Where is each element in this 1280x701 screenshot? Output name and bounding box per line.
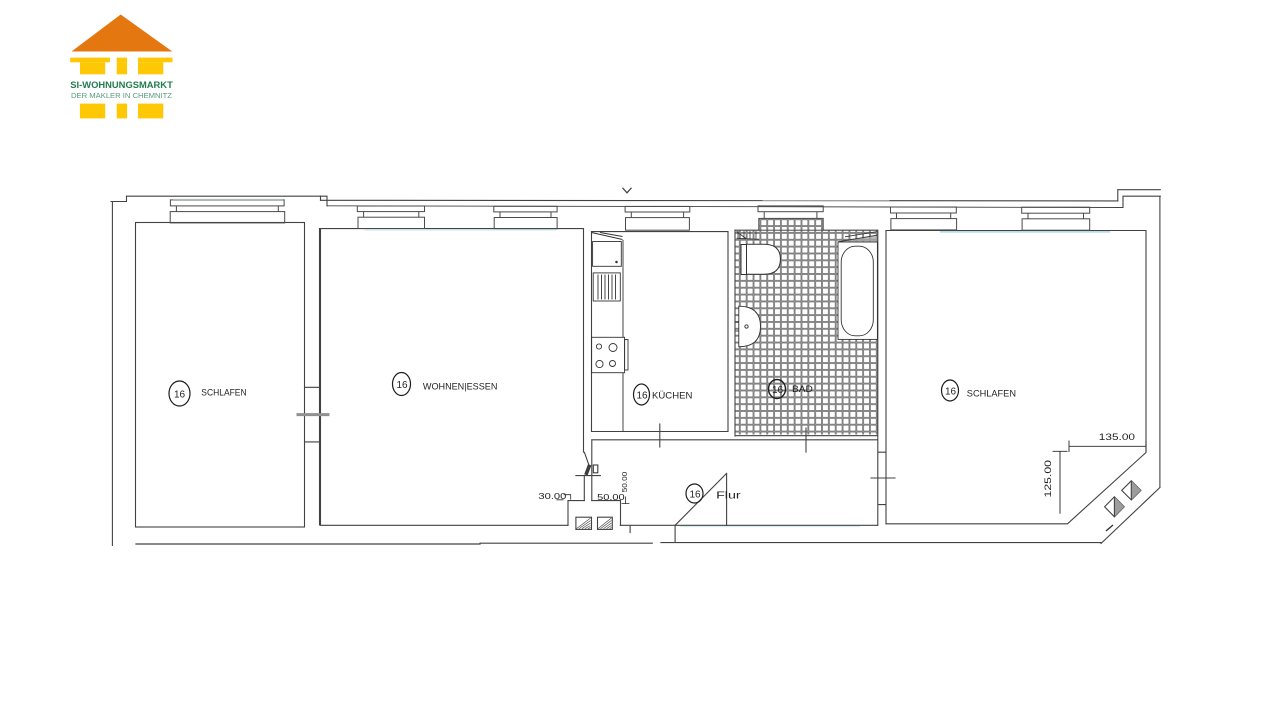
svg-text:KÜCHEN: KÜCHEN xyxy=(652,391,692,401)
svg-text:16: 16 xyxy=(637,391,649,402)
svg-text:SI-WOHNUNGSMARKT: SI-WOHNUNGSMARKT xyxy=(70,80,173,91)
svg-text:16: 16 xyxy=(772,385,784,396)
svg-text:BAD: BAD xyxy=(792,384,813,394)
svg-text:16: 16 xyxy=(945,387,957,398)
svg-text:16: 16 xyxy=(690,490,702,501)
svg-text:DER MAKLER IN CHEMNITZ: DER MAKLER IN CHEMNITZ xyxy=(71,91,172,100)
svg-text:SCHLAFEN: SCHLAFEN xyxy=(967,389,1016,399)
svg-text:Flur: Flur xyxy=(716,491,742,502)
svg-text:50.00: 50.00 xyxy=(620,472,629,493)
svg-text:125.00: 125.00 xyxy=(1043,460,1053,498)
svg-text:50.00: 50.00 xyxy=(597,493,625,502)
svg-text:16: 16 xyxy=(397,380,409,391)
svg-text:WOHNEN|ESSEN: WOHNEN|ESSEN xyxy=(423,382,498,392)
svg-text:SCHLAFEN: SCHLAFEN xyxy=(201,388,246,398)
svg-text:16: 16 xyxy=(174,390,186,401)
svg-text:135.00: 135.00 xyxy=(1099,432,1135,442)
